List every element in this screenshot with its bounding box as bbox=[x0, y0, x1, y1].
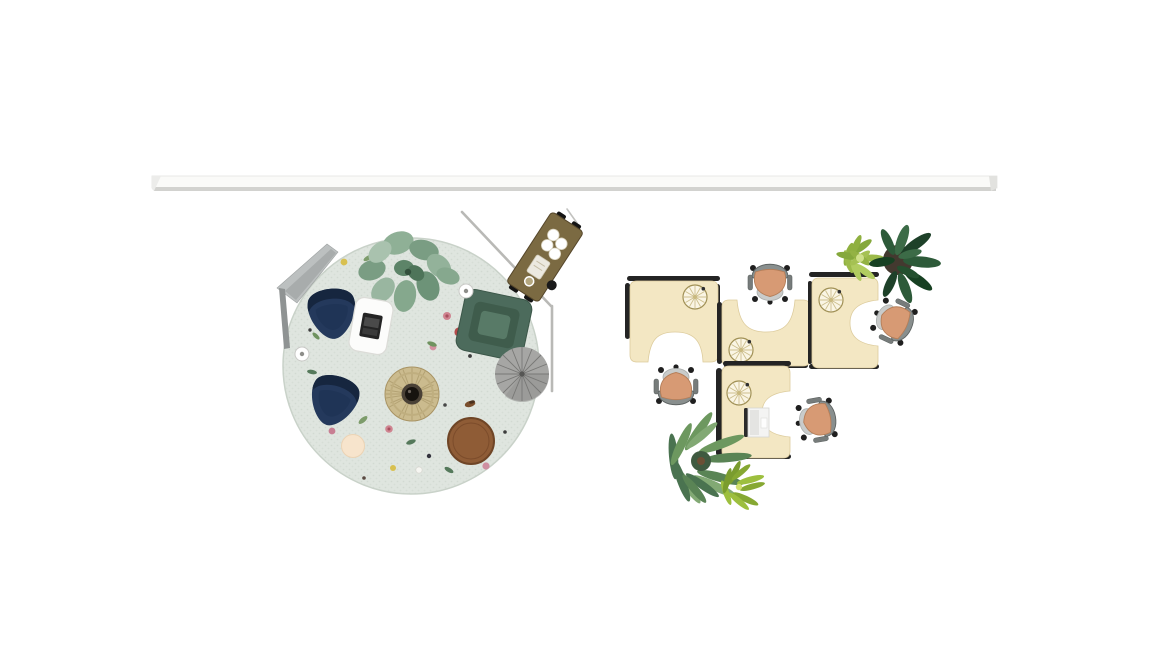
rattan-highlight bbox=[408, 390, 411, 393]
palm-center bbox=[736, 484, 742, 490]
plant-stem bbox=[405, 269, 411, 275]
monstera-plant[interactable] bbox=[868, 223, 941, 304]
desk-wheel-decor bbox=[819, 288, 843, 312]
desk-right[interactable] bbox=[808, 272, 879, 369]
task-chair-top[interactable] bbox=[748, 264, 792, 304]
desk-edge-bar bbox=[717, 302, 722, 364]
desk-wheel-decor bbox=[729, 338, 753, 362]
rattan-drum-table[interactable] bbox=[385, 367, 439, 421]
desk-edge-bar bbox=[627, 276, 720, 281]
palm-plant[interactable] bbox=[719, 460, 766, 512]
fern-pot bbox=[697, 457, 705, 465]
palm-leaves bbox=[719, 460, 766, 512]
cream-stool[interactable] bbox=[342, 435, 365, 458]
desk-middle[interactable] bbox=[717, 300, 811, 368]
desk-edge-bar bbox=[625, 283, 630, 339]
task-chair-bottom[interactable] bbox=[792, 395, 839, 445]
desk-laptop-keys bbox=[750, 410, 759, 435]
cart-body bbox=[506, 211, 584, 302]
desk-laptop[interactable] bbox=[744, 408, 769, 437]
bromeliad-center bbox=[856, 254, 864, 262]
task-chair-left[interactable] bbox=[654, 364, 698, 404]
lamp-stem bbox=[279, 288, 290, 349]
desk-edge-bar bbox=[723, 361, 791, 366]
disc-table-right[interactable] bbox=[459, 284, 473, 298]
desk-wheel-decor bbox=[727, 381, 751, 405]
wall-shadow-edge bbox=[154, 187, 996, 191]
wall-face bbox=[152, 176, 997, 188]
desk-laptop-trackpad bbox=[761, 418, 767, 428]
desk-edge-bar bbox=[808, 281, 812, 364]
brown-table-top bbox=[448, 418, 494, 464]
partition-stub bbox=[567, 209, 577, 223]
wall-segment bbox=[152, 176, 997, 191]
desk-laptop-hinge bbox=[744, 408, 748, 437]
cream-stool-top bbox=[342, 435, 365, 458]
desk-wheel-decor bbox=[683, 285, 707, 309]
gray-table-hub bbox=[519, 371, 524, 376]
floorplan-canvas bbox=[0, 0, 1166, 656]
rattan-center bbox=[405, 387, 419, 401]
brown-round-side-table[interactable] bbox=[448, 418, 494, 464]
desk-left[interactable] bbox=[625, 276, 720, 362]
disc-table-left[interactable] bbox=[295, 347, 309, 361]
